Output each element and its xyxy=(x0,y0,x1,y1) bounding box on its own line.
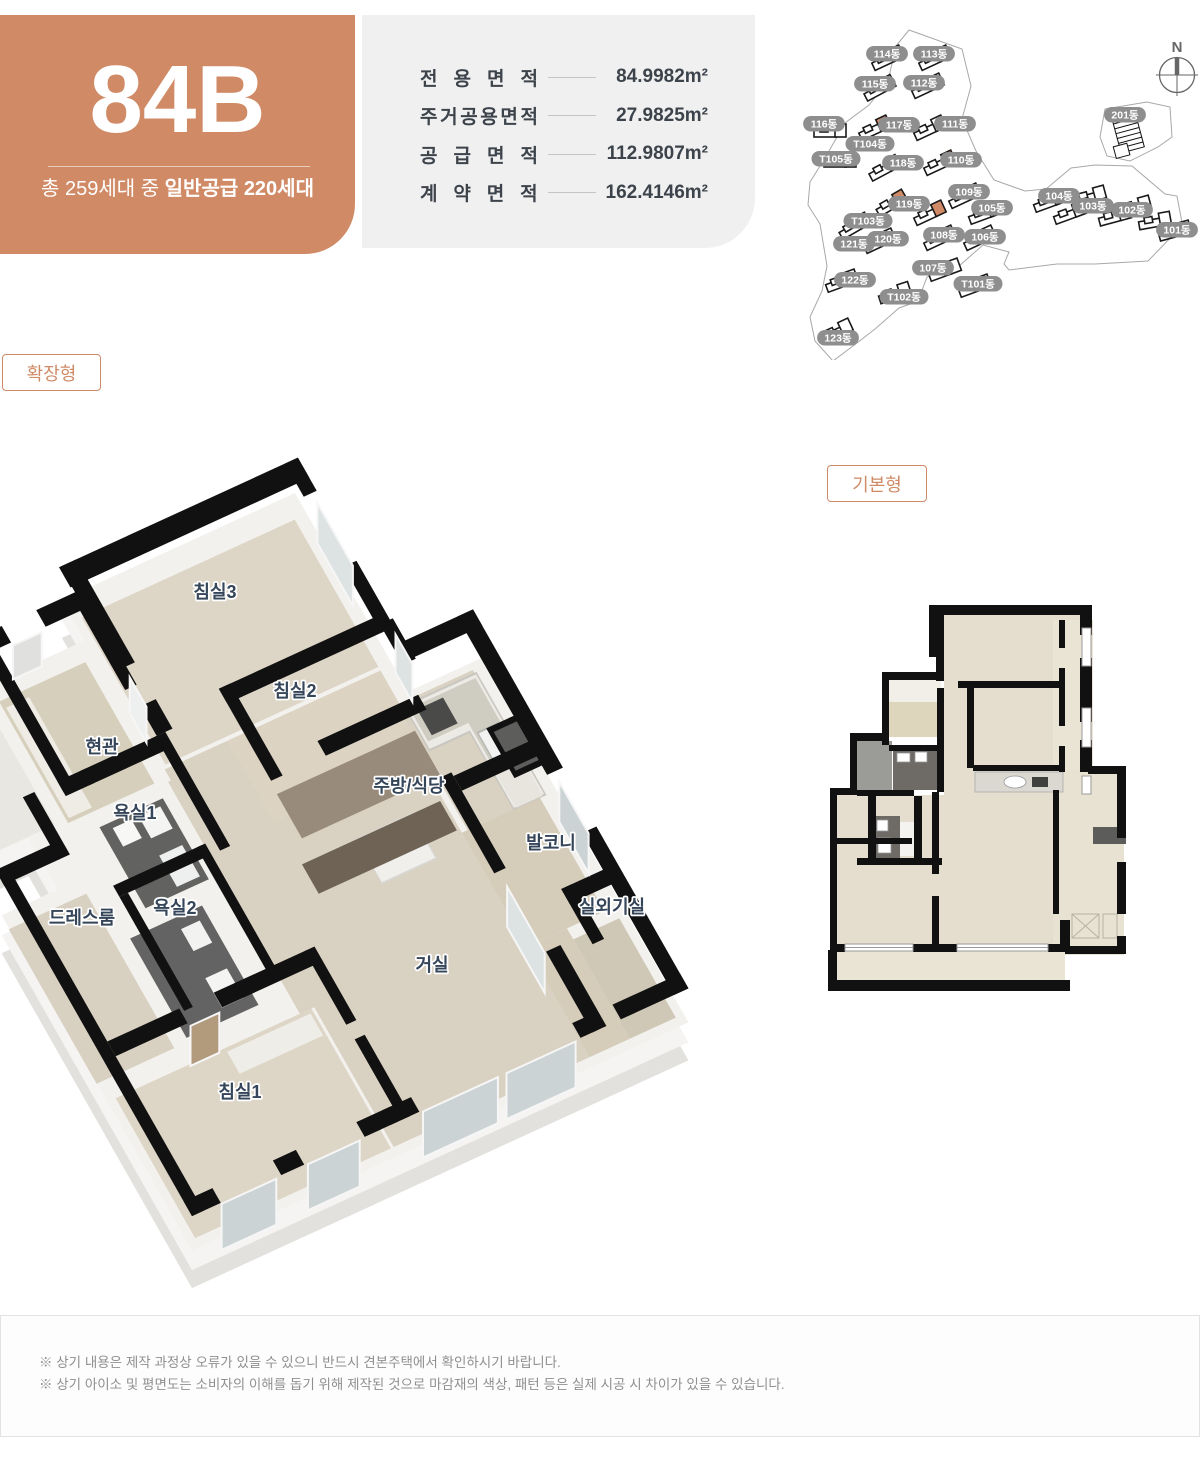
svg-text:T104동: T104동 xyxy=(853,139,887,151)
svg-text:103동: 103동 xyxy=(1079,201,1107,213)
svg-text:104동: 104동 xyxy=(1045,191,1073,203)
svg-text:117동: 117동 xyxy=(886,120,913,132)
svg-text:123동: 123동 xyxy=(824,333,852,345)
svg-text:N: N xyxy=(1172,39,1183,56)
svg-text:120동: 120동 xyxy=(874,234,902,246)
svg-text:드레스룸: 드레스룸 xyxy=(49,908,115,928)
svg-text:현관: 현관 xyxy=(85,737,119,757)
svg-text:실외기실: 실외기실 xyxy=(579,897,645,917)
svg-text:112동: 112동 xyxy=(911,78,938,90)
svg-text:110동: 110동 xyxy=(948,155,975,167)
svg-text:119동: 119동 xyxy=(896,199,923,211)
svg-text:T102동: T102동 xyxy=(887,292,921,304)
svg-text:T101동: T101동 xyxy=(961,279,995,291)
svg-text:침실3: 침실3 xyxy=(193,582,236,602)
svg-text:102동: 102동 xyxy=(1118,205,1146,217)
svg-text:116동: 116동 xyxy=(811,119,838,131)
svg-text:T103동: T103동 xyxy=(851,216,885,228)
svg-text:201동: 201동 xyxy=(1111,110,1139,122)
svg-text:118동: 118동 xyxy=(890,158,917,170)
svg-text:욕실1: 욕실1 xyxy=(113,803,156,823)
svg-text:114동: 114동 xyxy=(874,49,901,61)
svg-text:발코니: 발코니 xyxy=(526,833,576,853)
svg-text:106동: 106동 xyxy=(971,232,999,244)
svg-text:T105동: T105동 xyxy=(819,154,853,166)
svg-text:111동: 111동 xyxy=(942,119,968,131)
svg-text:105동: 105동 xyxy=(978,203,1006,215)
svg-text:115동: 115동 xyxy=(862,79,889,91)
svg-text:101동: 101동 xyxy=(1163,225,1191,237)
svg-text:침실2: 침실2 xyxy=(273,681,316,701)
svg-text:113동: 113동 xyxy=(921,49,948,61)
svg-text:109동: 109동 xyxy=(955,187,983,199)
svg-text:욕실2: 욕실2 xyxy=(153,898,196,918)
svg-text:침실1: 침실1 xyxy=(218,1082,261,1102)
svg-text:121동: 121동 xyxy=(840,239,868,251)
svg-text:107동: 107동 xyxy=(919,263,947,275)
svg-text:거실: 거실 xyxy=(415,955,448,975)
svg-text:주방/식당: 주방/식당 xyxy=(373,776,445,796)
svg-text:108동: 108동 xyxy=(930,230,958,242)
svg-text:122동: 122동 xyxy=(841,275,869,287)
